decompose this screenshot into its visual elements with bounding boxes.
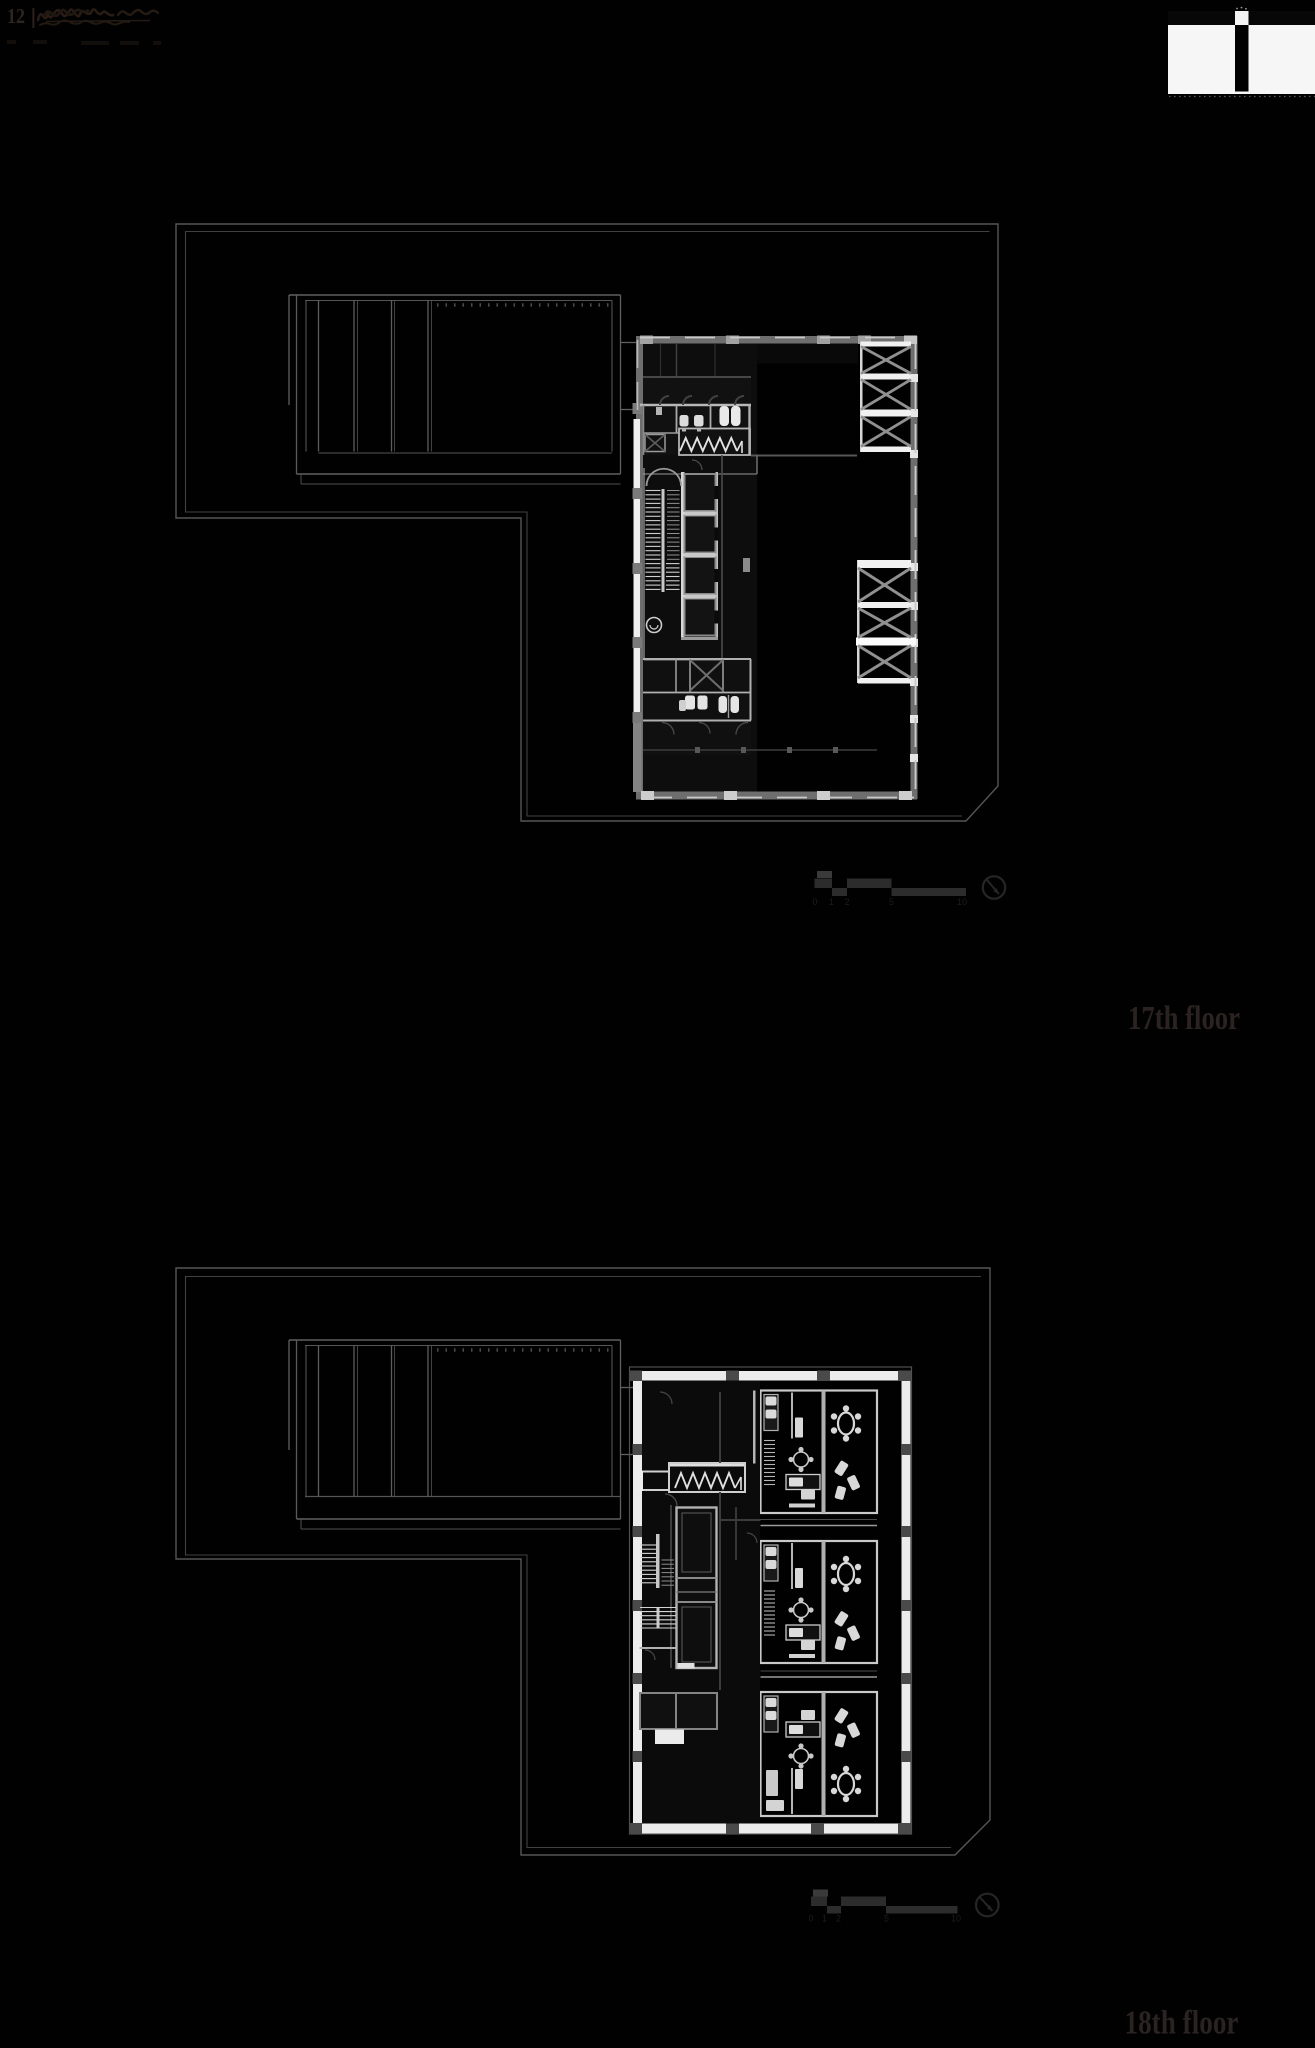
svg-text:10: 10 xyxy=(957,897,967,907)
svg-text:12: 12 xyxy=(7,4,25,28)
svg-text:10: 10 xyxy=(951,1914,961,1924)
svg-text:2: 2 xyxy=(836,1914,841,1924)
svg-text:0: 0 xyxy=(813,897,818,907)
svg-text:1: 1 xyxy=(822,1914,827,1924)
svg-text:5: 5 xyxy=(889,897,894,907)
svg-text:17th floor: 17th floor xyxy=(1128,1000,1240,1037)
svg-text:0: 0 xyxy=(809,1914,814,1924)
svg-text:2: 2 xyxy=(845,897,850,907)
svg-text:1: 1 xyxy=(829,897,834,907)
svg-text:18th floor: 18th floor xyxy=(1125,2005,1239,2042)
svg-text:5: 5 xyxy=(884,1914,889,1924)
